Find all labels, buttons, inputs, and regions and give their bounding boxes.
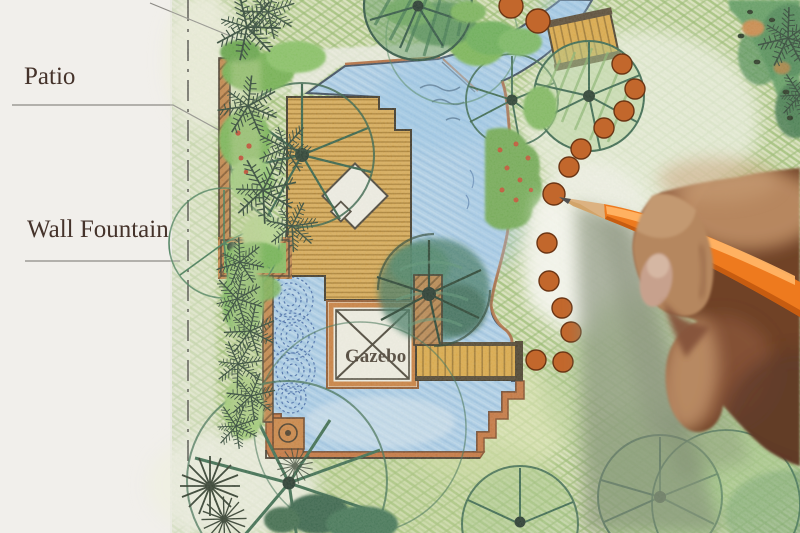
svg-text:Wall Fountain: Wall Fountain <box>27 216 169 243</box>
svg-text:Patio: Patio <box>24 63 75 90</box>
